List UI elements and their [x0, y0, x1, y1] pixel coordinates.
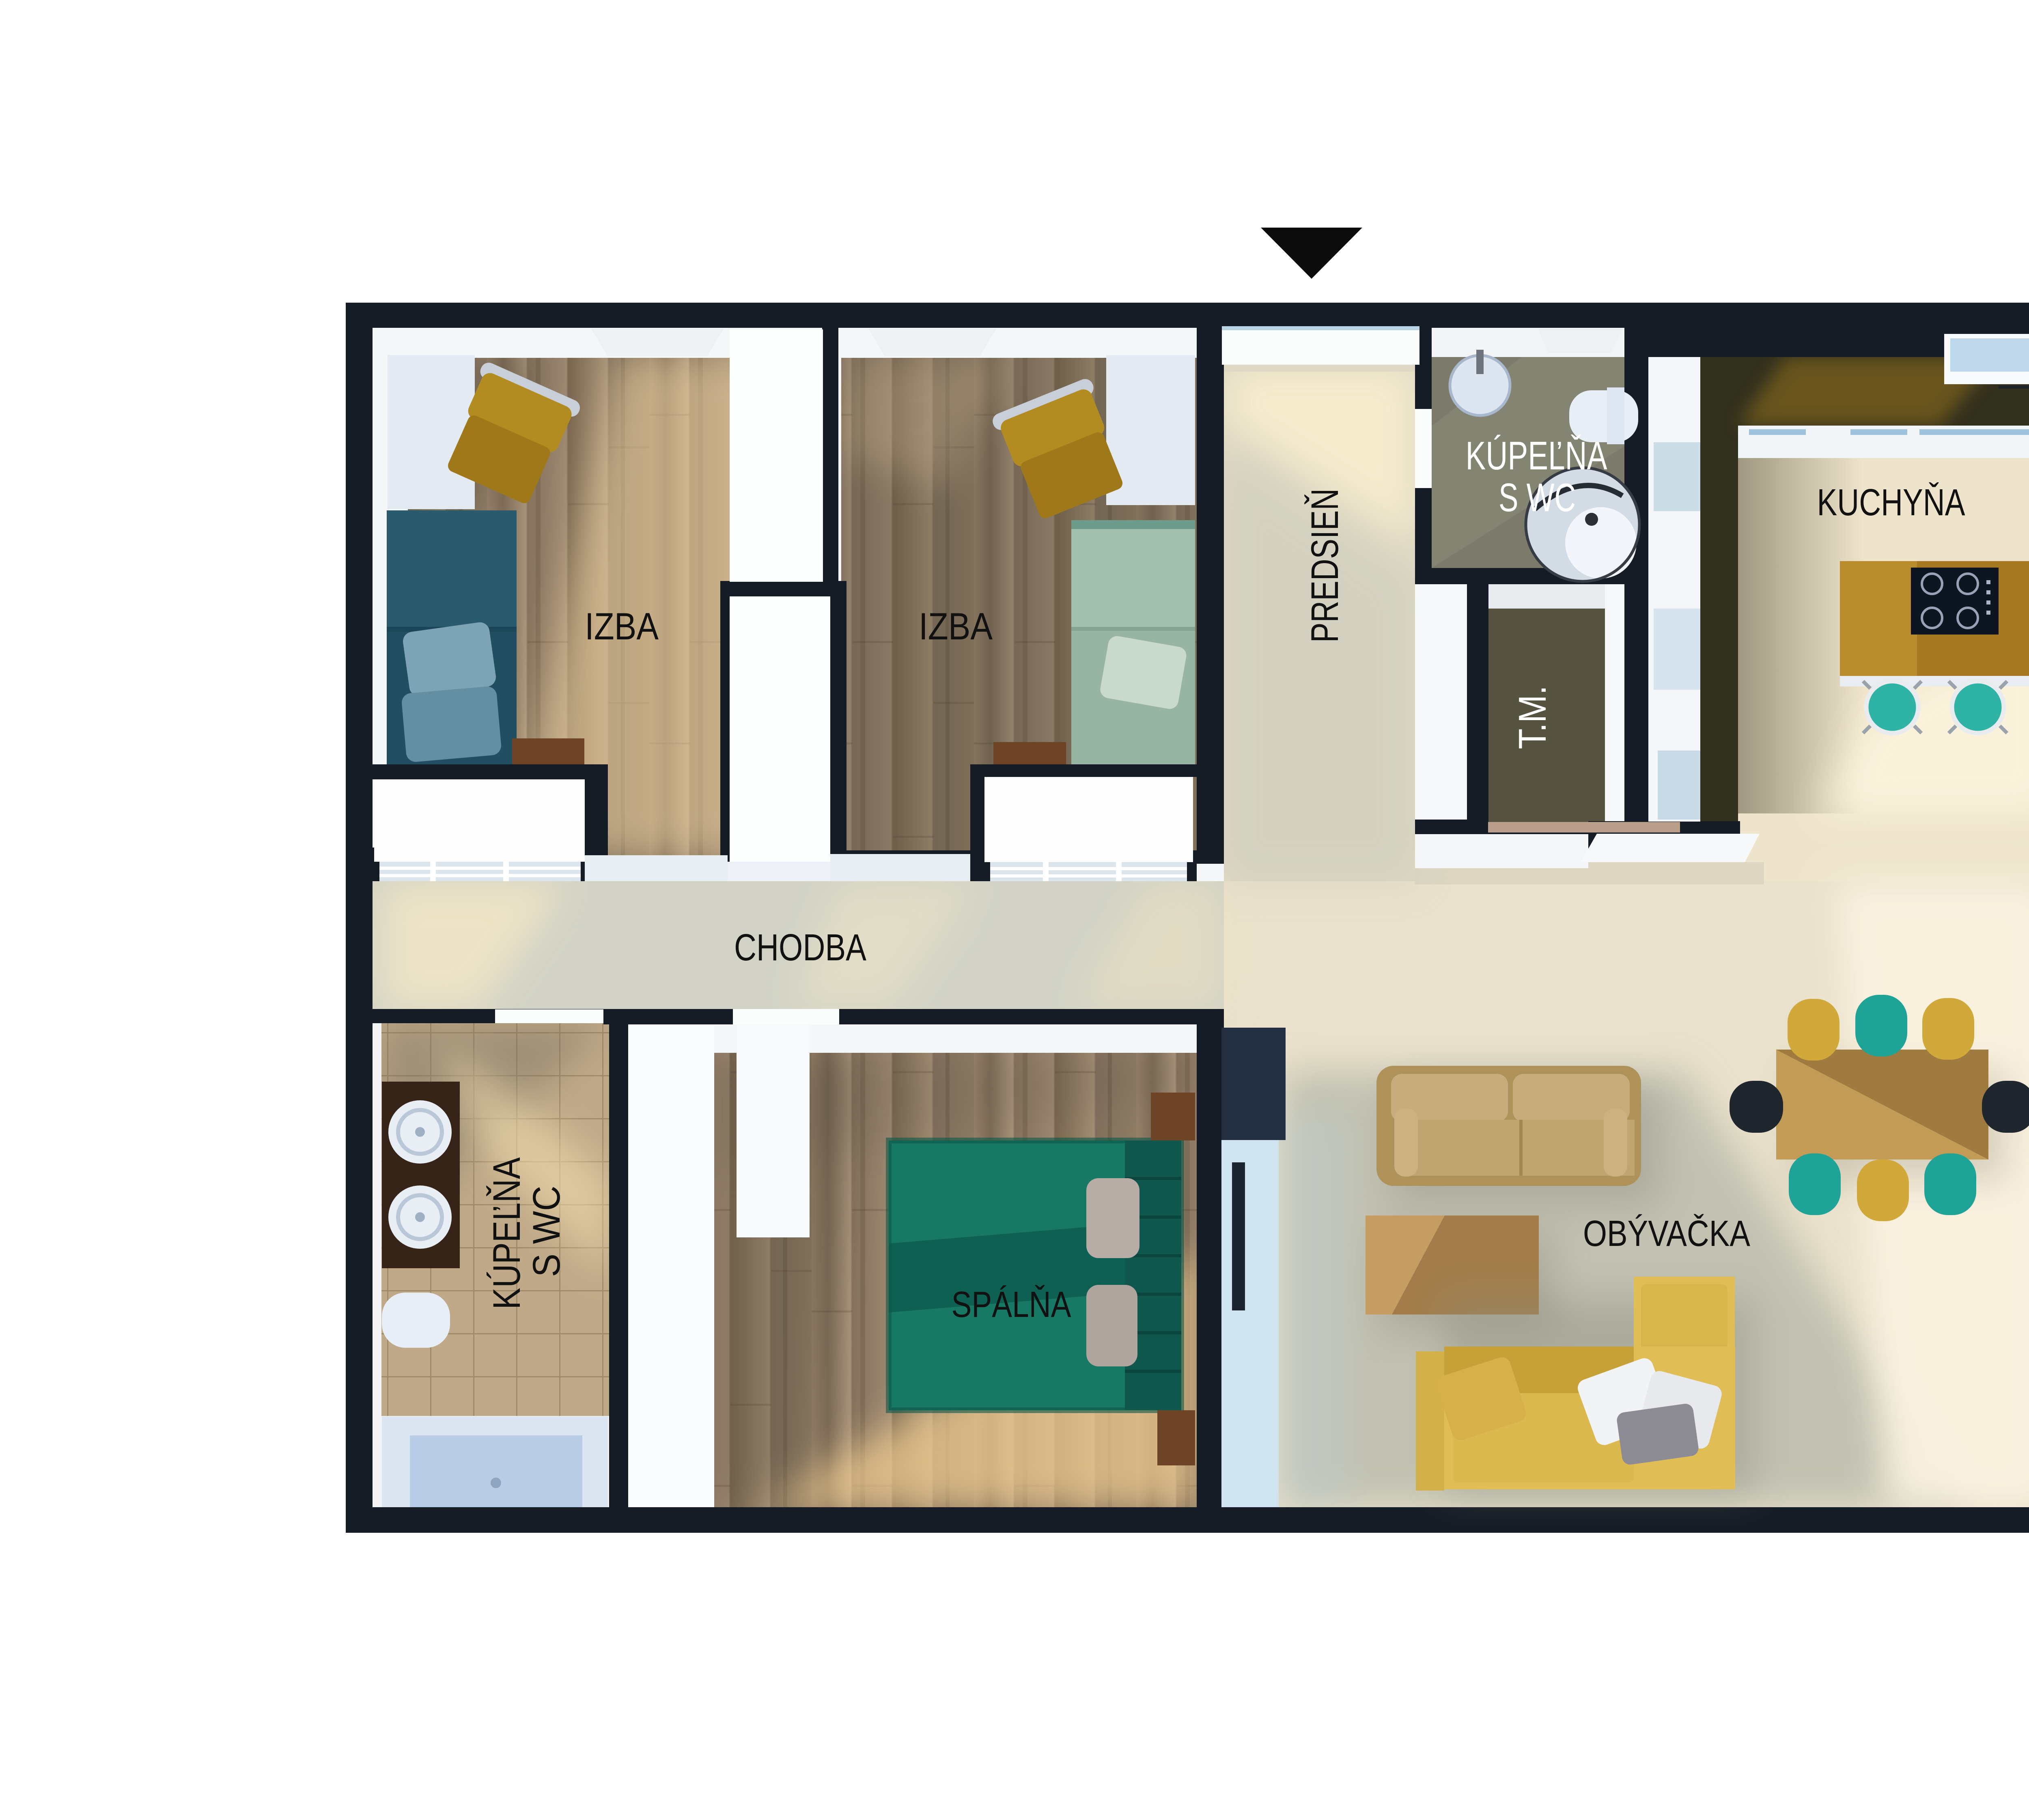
svg-text:CHODBA: CHODBA [734, 926, 866, 968]
svg-text:SPÁLŇA: SPÁLŇA [952, 1284, 1071, 1325]
svg-text:PREDSIEŇ: PREDSIEŇ [1303, 488, 1346, 643]
svg-text:S WC: S WC [525, 1186, 568, 1277]
svg-text:KUCHYŇA: KUCHYŇA [1817, 481, 1965, 523]
svg-text:KÚPEĽŇA: KÚPEĽŇA [1466, 433, 1607, 478]
svg-text:IZBA: IZBA [919, 605, 993, 648]
svg-text:OBÝVAČKA: OBÝVAČKA [1583, 1213, 1750, 1254]
svg-text:KÚPEĽŇA: KÚPEĽŇA [485, 1157, 528, 1310]
svg-text:S WC: S WC [1499, 475, 1576, 520]
svg-text:T.M.: T.M. [1511, 686, 1554, 749]
svg-text:IZBA: IZBA [585, 605, 659, 648]
